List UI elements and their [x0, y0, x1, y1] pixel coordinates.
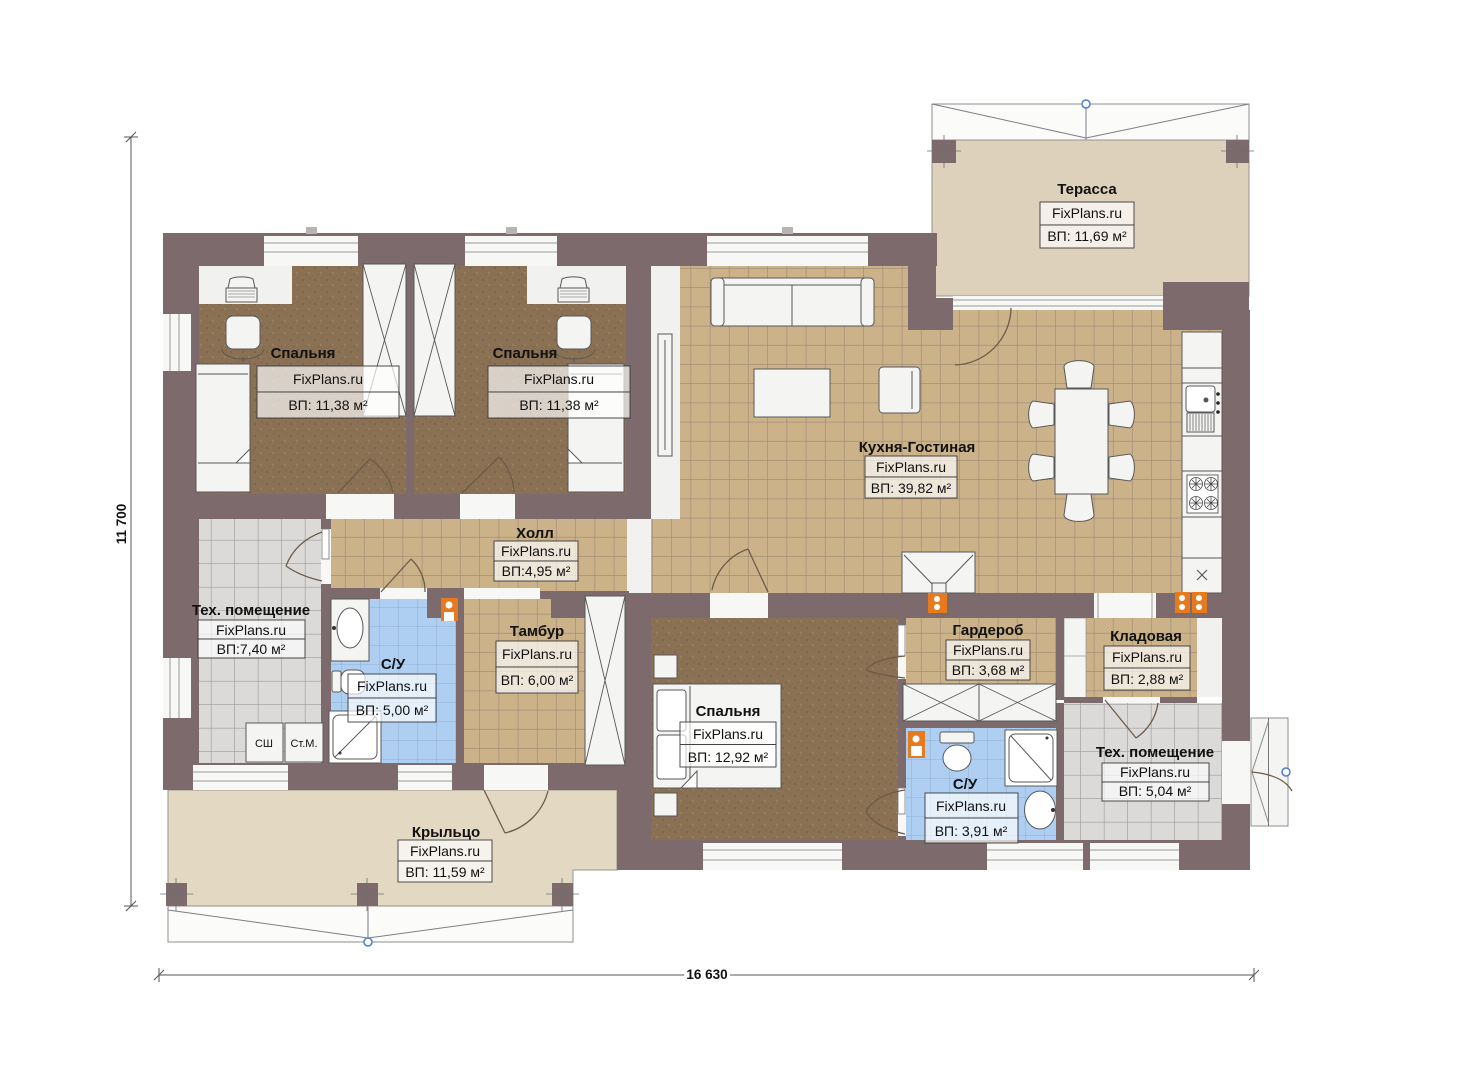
svg-text:FixPlans.ru: FixPlans.ru: [1052, 205, 1122, 221]
svg-text:ВП: 12,92 м²: ВП: 12,92 м²: [688, 749, 769, 765]
svg-text:ВП: 3,91 м²: ВП: 3,91 м²: [935, 823, 1008, 839]
svg-text:FixPlans.ru: FixPlans.ru: [216, 622, 286, 638]
svg-text:С/У: С/У: [381, 656, 406, 673]
svg-text:Ст.М.: Ст.М.: [290, 738, 317, 750]
svg-text:Тех. помещение: Тех. помещение: [192, 602, 310, 619]
svg-text:Спальня: Спальня: [271, 345, 336, 362]
svg-text:ВП:7,40 м²: ВП:7,40 м²: [217, 641, 286, 657]
svg-text:FixPlans.ru: FixPlans.ru: [693, 726, 763, 742]
svg-text:FixPlans.ru: FixPlans.ru: [1120, 764, 1190, 780]
svg-text:Гардероб: Гардероб: [953, 622, 1024, 639]
svg-text:ВП: 2,88 м²: ВП: 2,88 м²: [1111, 671, 1184, 687]
svg-text:FixPlans.ru: FixPlans.ru: [524, 371, 594, 387]
svg-text:Тамбур: Тамбур: [510, 623, 564, 640]
svg-text:ВП: 6,00 м²: ВП: 6,00 м²: [501, 672, 574, 688]
svg-text:FixPlans.ru: FixPlans.ru: [501, 543, 571, 559]
svg-text:16 630: 16 630: [686, 967, 727, 982]
svg-text:СШ: СШ: [255, 738, 273, 750]
svg-text:Кладовая: Кладовая: [1110, 628, 1182, 645]
svg-text:FixPlans.ru: FixPlans.ru: [502, 646, 572, 662]
svg-text:11 700: 11 700: [114, 504, 129, 545]
svg-text:FixPlans.ru: FixPlans.ru: [357, 678, 427, 694]
svg-text:ВП: 11,59 м²: ВП: 11,59 м²: [405, 864, 485, 880]
svg-text:ВП: 39,82 м²: ВП: 39,82 м²: [871, 480, 952, 496]
svg-text:ВП: 11,38 м²: ВП: 11,38 м²: [519, 397, 599, 413]
svg-text:Спальня: Спальня: [696, 703, 761, 720]
svg-text:Крыльцо: Крыльцо: [412, 824, 480, 841]
svg-text:ВП: 11,69 м²: ВП: 11,69 м²: [1047, 228, 1127, 244]
svg-text:С/У: С/У: [953, 776, 978, 793]
svg-text:Терасса: Терасса: [1057, 181, 1117, 198]
svg-text:ВП: 5,00 м²: ВП: 5,00 м²: [356, 702, 429, 718]
svg-text:FixPlans.ru: FixPlans.ru: [410, 843, 480, 859]
svg-text:Кухня-Гостиная: Кухня-Гостиная: [859, 439, 976, 456]
svg-text:FixPlans.ru: FixPlans.ru: [293, 371, 363, 387]
svg-text:ВП: 3,68 м²: ВП: 3,68 м²: [952, 662, 1025, 678]
svg-text:ВП: 5,04 м²: ВП: 5,04 м²: [1119, 783, 1192, 799]
svg-text:ВП:4,95 м²: ВП:4,95 м²: [502, 563, 571, 579]
svg-text:ВП: 11,38 м²: ВП: 11,38 м²: [288, 397, 368, 413]
svg-text:Холл: Холл: [516, 525, 554, 542]
svg-text:Тех. помещение: Тех. помещение: [1096, 744, 1214, 761]
svg-text:FixPlans.ru: FixPlans.ru: [1112, 649, 1182, 665]
svg-text:FixPlans.ru: FixPlans.ru: [953, 642, 1023, 658]
svg-text:FixPlans.ru: FixPlans.ru: [876, 459, 946, 475]
svg-text:Спальня: Спальня: [493, 345, 558, 362]
svg-text:FixPlans.ru: FixPlans.ru: [936, 798, 1006, 814]
